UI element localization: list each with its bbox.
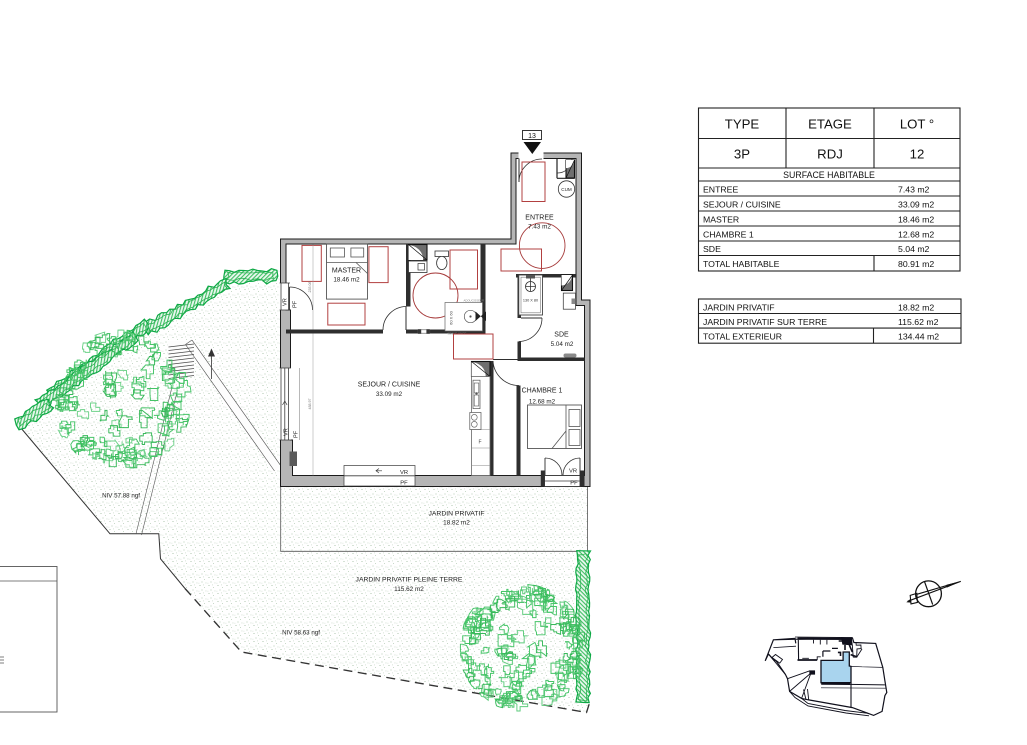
svg-text:NIV 58.63 ngf: NIV 58.63 ngf (282, 630, 320, 637)
svg-text:PF: PF (400, 480, 408, 486)
svg-text:134.44 m2: 134.44 m2 (898, 332, 939, 342)
svg-text:SEJOUR / CUISINE: SEJOUR / CUISINE (703, 199, 781, 209)
svg-text:VR: VR (283, 298, 289, 306)
svg-text:18.82 m2: 18.82 m2 (898, 302, 934, 312)
svg-text:PF: PF (294, 430, 300, 438)
svg-text:F: F (479, 440, 482, 446)
svg-text:SDE: SDE (554, 332, 569, 339)
svg-text:CUM: CUM (561, 187, 572, 192)
svg-text:JARDIN PRIVATIF: JARDIN PRIVATIF (703, 302, 775, 312)
svg-text:115.62 m2: 115.62 m2 (394, 586, 424, 593)
svg-text:ADOUCISSEUR: ADOUCISSEUR (464, 299, 485, 303)
svg-text:PF: PF (293, 300, 299, 308)
svg-text:3P: 3P (734, 147, 750, 162)
svg-text:TOTAL HABITABLE: TOTAL HABITABLE (703, 259, 780, 269)
svg-text:235.08: 235.08 (308, 282, 312, 293)
svg-text:MASTER: MASTER (703, 214, 739, 224)
svg-text:JARDIN PRIVATIF: JARDIN PRIVATIF (428, 511, 484, 518)
svg-text:130 X 80: 130 X 80 (523, 299, 538, 303)
svg-text:CHAMBRE 1: CHAMBRE 1 (703, 229, 754, 239)
svg-text:33.09 m2: 33.09 m2 (898, 199, 934, 209)
svg-text:LOT °: LOT ° (900, 117, 934, 132)
svg-text:RDJ: RDJ (817, 147, 843, 162)
svg-text:12: 12 (910, 147, 925, 162)
svg-text:JARDIN PRIVATIF SUR TERRE: JARDIN PRIVATIF SUR TERRE (703, 317, 827, 327)
svg-text:SEJOUR / CUISINE: SEJOUR / CUISINE (358, 382, 421, 389)
svg-text:7.43 m2: 7.43 m2 (528, 224, 551, 231)
svg-text:PF: PF (570, 481, 578, 487)
svg-text:7.43 m2: 7.43 m2 (898, 184, 930, 194)
svg-text:5.04 m2: 5.04 m2 (551, 341, 574, 348)
svg-text:18.46 m2: 18.46 m2 (333, 277, 360, 284)
svg-text:18.46 m2: 18.46 m2 (898, 214, 934, 224)
svg-text:CHAMBRE 1: CHAMBRE 1 (522, 388, 563, 395)
svg-text:5.04 m2: 5.04 m2 (898, 244, 930, 254)
svg-text:VR: VR (284, 428, 290, 436)
svg-text:80.91 m2: 80.91 m2 (898, 259, 934, 269)
svg-text:ENTREE: ENTREE (525, 215, 554, 222)
svg-text:NIV 57.88 ngf: NIV 57.88 ngf (102, 493, 140, 500)
svg-text:60 X 60: 60 X 60 (449, 310, 454, 325)
svg-text:13: 13 (528, 133, 536, 140)
svg-text:VR: VR (569, 469, 577, 475)
svg-text:TYPE: TYPE (725, 117, 760, 132)
svg-text:MASTER: MASTER (332, 268, 361, 275)
svg-text:18.82 m2: 18.82 m2 (443, 520, 470, 527)
svg-text:TOTAL EXTERIEUR: TOTAL EXTERIEUR (703, 332, 782, 342)
svg-text:SDE: SDE (703, 244, 721, 254)
svg-text:JARDIN PRIVATIF PLEINE TERRE: JARDIN PRIVATIF PLEINE TERRE (356, 577, 463, 584)
svg-text:SURFACE HABITABLE: SURFACE HABITABLE (783, 170, 875, 180)
svg-text:ETAGE: ETAGE (808, 117, 852, 132)
svg-text:VR: VR (400, 470, 408, 476)
svg-text:12.68 m2: 12.68 m2 (898, 229, 934, 239)
svg-text:12.68 m2: 12.68 m2 (529, 399, 556, 406)
svg-text:488.97: 488.97 (308, 399, 312, 410)
svg-text:ENTREE: ENTREE (703, 184, 738, 194)
svg-text:115.62 m2: 115.62 m2 (898, 317, 939, 327)
svg-text:33.09 m2: 33.09 m2 (376, 391, 403, 398)
